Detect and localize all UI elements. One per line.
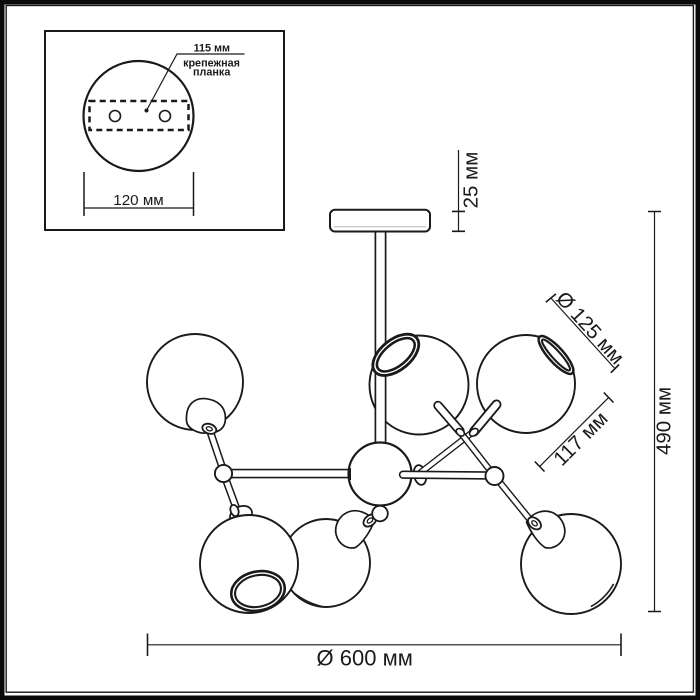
svg-text:Ø 600 мм: Ø 600 мм — [317, 645, 413, 670]
svg-text:490 мм: 490 мм — [653, 387, 676, 455]
svg-text:115 мм: 115 мм — [194, 42, 230, 54]
svg-text:планка: планка — [193, 67, 231, 79]
svg-text:25 мм: 25 мм — [460, 152, 483, 209]
svg-text:120 мм: 120 мм — [113, 192, 163, 209]
